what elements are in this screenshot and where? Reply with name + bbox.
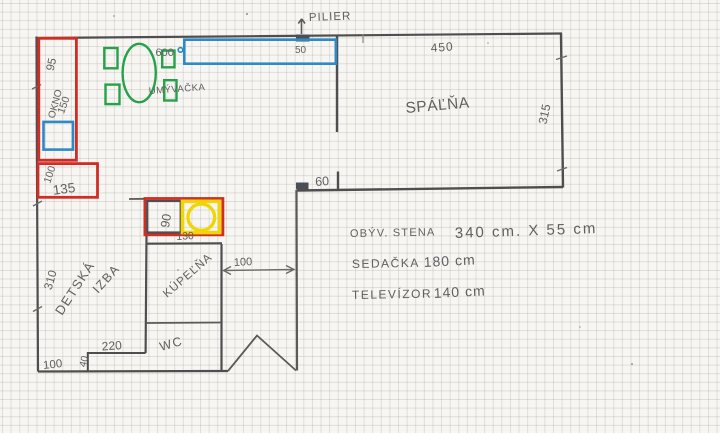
svg-text:50: 50: [295, 45, 307, 56]
svg-text:100: 100: [234, 256, 253, 269]
svg-text:95: 95: [45, 57, 60, 72]
svg-text:60: 60: [315, 174, 330, 189]
svg-text:KÚPEĽŇA: KÚPEĽŇA: [160, 251, 214, 301]
svg-text:450: 450: [430, 39, 454, 55]
svg-text:PILIER: PILIER: [309, 11, 352, 24]
svg-text:40: 40: [78, 354, 92, 368]
svg-text:310: 310: [41, 268, 60, 291]
svg-text:90: 90: [158, 213, 174, 229]
svg-text:UMÝVAČKA: UMÝVAČKA: [148, 82, 205, 97]
svg-text:220: 220: [101, 338, 122, 353]
svg-text:OBÝV. STENA: OBÝV. STENA: [350, 226, 436, 240]
svg-text:180 cm: 180 cm: [423, 251, 476, 270]
svg-text:100: 100: [43, 358, 63, 372]
svg-text:135: 135: [52, 180, 76, 198]
svg-text:315: 315: [536, 103, 554, 126]
svg-text:140 cm: 140 cm: [433, 282, 486, 301]
svg-text:TELEVÍZOR: TELEVÍZOR: [352, 286, 432, 302]
svg-text:SPÁĽŇA: SPÁĽŇA: [405, 94, 471, 117]
svg-text:WC: WC: [158, 334, 185, 354]
svg-text:340 cm. X 55 cm: 340 cm. X 55 cm: [455, 220, 598, 242]
svg-text:SEDAČKA: SEDAČKA: [352, 255, 420, 271]
svg-text:130: 130: [176, 230, 194, 243]
svg-text:600: 600: [156, 47, 174, 59]
